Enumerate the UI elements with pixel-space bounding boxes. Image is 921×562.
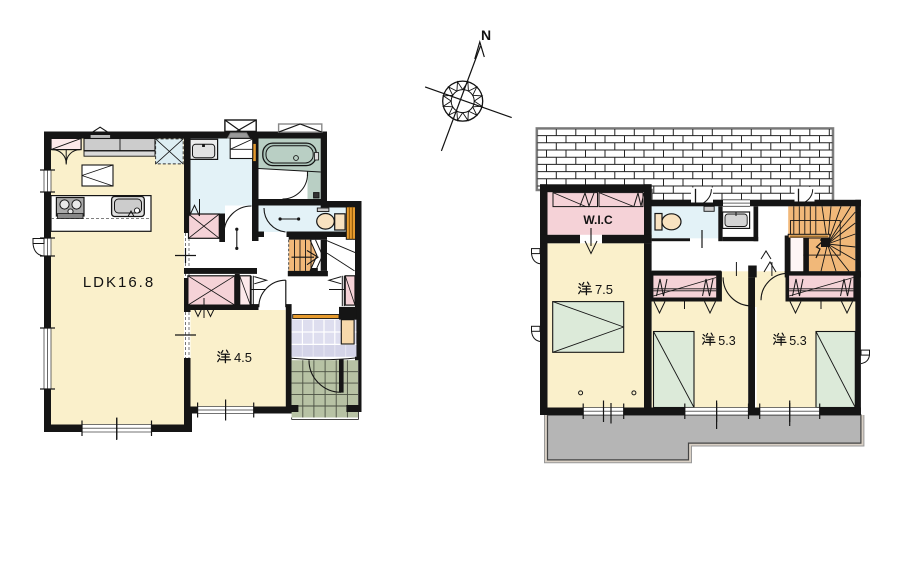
svg-text:N: N bbox=[481, 27, 491, 43]
svg-text:5.3: 5.3 bbox=[789, 334, 806, 348]
svg-text:LDK16.8: LDK16.8 bbox=[83, 274, 155, 291]
svg-text:7.5: 7.5 bbox=[595, 282, 613, 297]
svg-text:W.I.C: W.I.C bbox=[583, 213, 613, 227]
svg-text:5.3: 5.3 bbox=[718, 334, 735, 348]
svg-text:4.5: 4.5 bbox=[234, 350, 252, 365]
